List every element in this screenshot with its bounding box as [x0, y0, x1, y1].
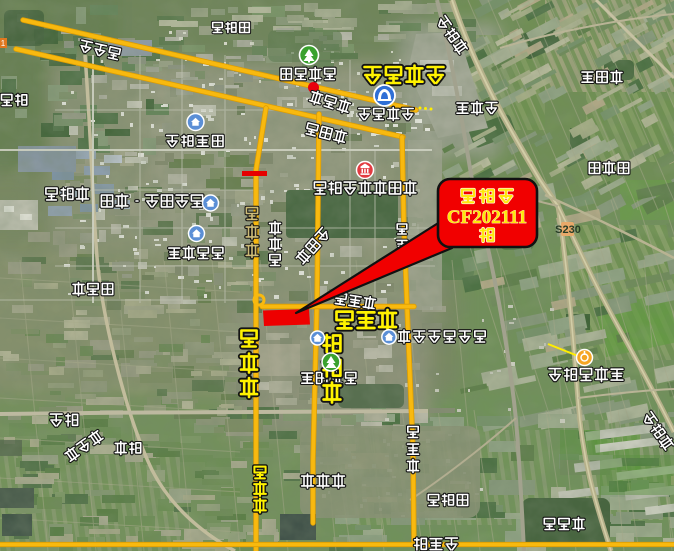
- svg-text:CF202111: CF202111: [447, 207, 527, 228]
- svg-text:S230: S230: [555, 224, 581, 236]
- svg-text:1: 1: [1, 39, 6, 48]
